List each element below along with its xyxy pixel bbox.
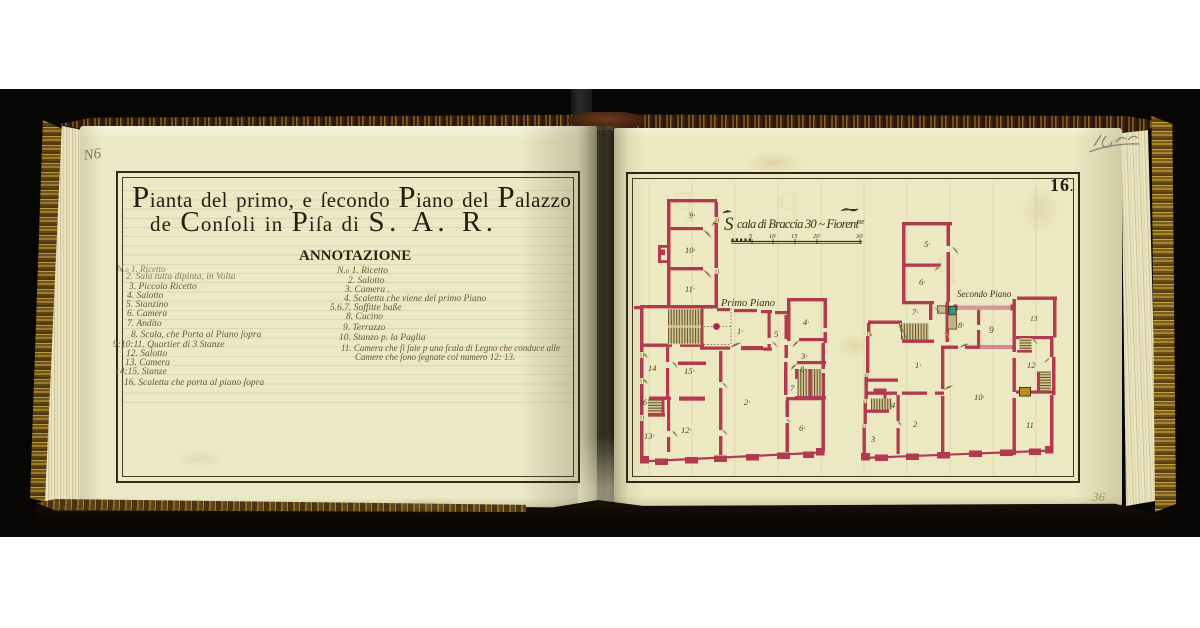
svg-text:ne: ne [857,217,865,226]
svg-text:7·: 7· [912,307,918,317]
svg-text:10: 10 [769,233,776,240]
svg-text:7: 7 [790,383,795,393]
svg-text:Primo Piano: Primo Piano [720,298,775,309]
svg-text:9·: 9· [689,210,695,220]
svg-text:15·: 15· [684,366,695,376]
svg-text:9: 9 [989,326,994,336]
svg-text:12: 12 [1027,360,1036,370]
svg-text:15: 15 [791,233,798,240]
svg-text:13: 13 [1030,314,1038,323]
svg-text:1·: 1· [737,326,743,336]
svg-text:30: 30 [855,233,863,240]
svg-text:4·: 4· [803,317,809,327]
svg-text:8·: 8· [800,364,806,374]
svg-text:8·: 8· [958,320,964,330]
svg-text:3·: 3· [800,351,807,361]
svg-text:14: 14 [648,363,657,373]
svg-text:11·: 11· [685,284,695,294]
svg-text:cala di Braccia 30 ~ Fiorent: cala di Braccia 30 ~ Fiorent [737,217,860,231]
svg-text:P: P [671,181,697,232]
svg-text:5: 5 [749,233,753,240]
svg-text:12·: 12· [681,425,692,435]
svg-text:20: 20 [813,233,820,240]
svg-text:5: 5 [774,329,778,339]
svg-text:3: 3 [870,434,875,444]
svg-text:Secondo Piano: Secondo Piano [957,289,1012,299]
svg-text:11: 11 [1026,420,1034,430]
svg-text:13·: 13· [644,431,655,441]
svg-text:6·: 6· [919,277,925,287]
svg-text:1·: 1· [915,360,921,370]
svg-text:5·: 5· [924,239,930,249]
svg-text:10·: 10· [685,245,696,255]
svg-text:2·: 2· [744,397,750,407]
svg-text:4: 4 [891,400,896,410]
svg-text:10·: 10· [974,392,985,402]
svg-text:S: S [724,214,734,235]
svg-text:2: 2 [913,419,918,429]
svg-text:6·: 6· [799,423,805,433]
svg-text:16: 16 [639,398,647,407]
